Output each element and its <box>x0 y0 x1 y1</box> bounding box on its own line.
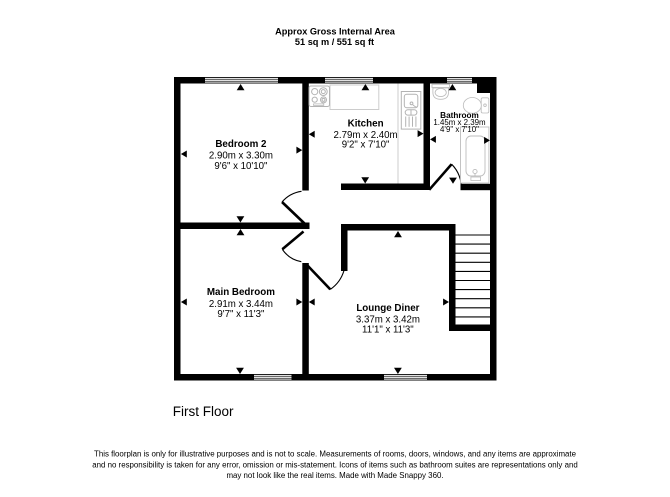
svg-text:This floorplan is only for ill: This floorplan is only for illustrative … <box>94 449 577 458</box>
svg-text:Kitchen: Kitchen <box>348 119 384 130</box>
svg-text:Lounge Diner: Lounge Diner <box>356 303 419 314</box>
svg-text:and no responsibility is taken: and no responsibility is taken for any e… <box>92 460 578 469</box>
svg-text:2.90m x 3.30m: 2.90m x 3.30m <box>209 151 273 162</box>
svg-text:9'2" x 7'10": 9'2" x 7'10" <box>342 140 390 151</box>
svg-text:11'1" x 11'3": 11'1" x 11'3" <box>362 324 414 335</box>
svg-text:First Floor: First Floor <box>173 404 234 419</box>
svg-text:4'9" x 7'10": 4'9" x 7'10" <box>440 125 479 134</box>
svg-text:9'6" x 10'10": 9'6" x 10'10" <box>214 161 268 172</box>
svg-text:51 sq m / 551 sq ft: 51 sq m / 551 sq ft <box>295 37 374 47</box>
svg-text:Approx Gross Internal Area: Approx Gross Internal Area <box>275 26 396 36</box>
svg-text:9'7" x 11'3": 9'7" x 11'3" <box>217 309 265 320</box>
svg-text:Bedroom 2: Bedroom 2 <box>215 139 267 150</box>
svg-text:Main Bedroom: Main Bedroom <box>207 287 275 298</box>
svg-text:may not look like the real ite: may not look like the real items. Made w… <box>226 471 443 480</box>
